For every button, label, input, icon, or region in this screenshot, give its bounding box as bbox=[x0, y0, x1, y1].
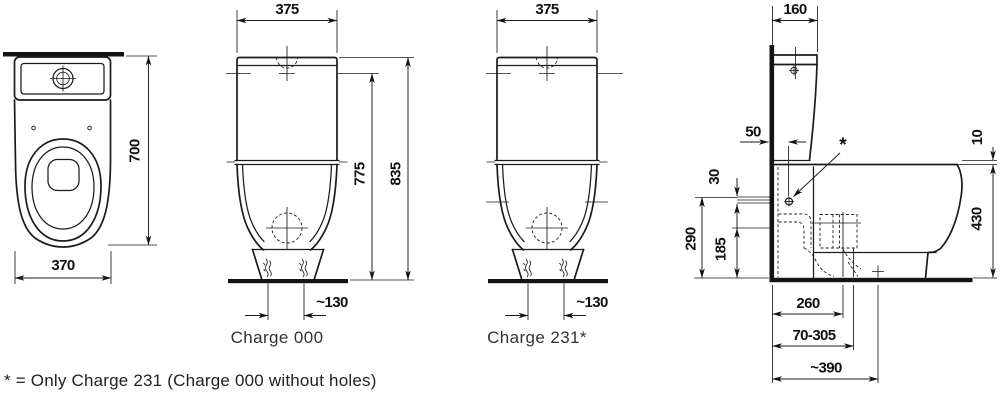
dim-bolt-spacing: ~130 bbox=[316, 294, 348, 311]
technical-drawing-page: 370 700 375 ~130 775 835 Charge 000 375 … bbox=[0, 0, 1000, 401]
floor-line bbox=[770, 278, 973, 282]
dim-height-835: 835 bbox=[388, 162, 405, 185]
trapway-hidden-lines bbox=[778, 167, 861, 278]
caption-charge-231: Charge 231* bbox=[487, 328, 587, 347]
wall-line bbox=[3, 52, 124, 57]
dim-bolt-spacing: ~130 bbox=[576, 294, 608, 311]
flush-button bbox=[50, 66, 76, 92]
front-view-charge-231: 375 ~130 Charge 231* bbox=[486, 1, 623, 347]
side-view: 160 bbox=[683, 1, 998, 383]
dim-width-370: 370 bbox=[51, 257, 74, 274]
asterisk-mark: * bbox=[839, 135, 847, 156]
side-inlet-hole bbox=[784, 197, 794, 207]
dim-cistern-depth-160: 160 bbox=[783, 1, 806, 18]
top-inlet-hole bbox=[789, 66, 799, 76]
dim-outlet-range-70-305: 70-305 bbox=[792, 327, 835, 344]
dim-rim-height-430: 430 bbox=[969, 207, 986, 230]
dim-outlet-dist-260: 260 bbox=[796, 295, 819, 312]
dim-inlet-offset-50: 50 bbox=[745, 124, 761, 141]
dim-height-775: 775 bbox=[352, 162, 369, 185]
asterisk-leader bbox=[794, 153, 841, 197]
wall-line bbox=[770, 45, 775, 282]
bowl-front-profile bbox=[926, 165, 962, 279]
dim-width-375: 375 bbox=[275, 1, 298, 18]
bowl-water-area bbox=[48, 160, 79, 191]
seat-fixing-hole bbox=[32, 126, 36, 130]
dim-supply-span-30: 30 bbox=[706, 169, 723, 185]
wc-dimension-drawing: 370 700 375 ~130 775 835 Charge 000 375 … bbox=[0, 0, 1000, 401]
cistern-front-edge bbox=[810, 65, 818, 161]
front-view-charge-000: 375 ~130 775 835 Charge 000 bbox=[226, 1, 414, 347]
footnote: * = Only Charge 231 (Charge 000 without … bbox=[4, 371, 377, 390]
dim-width-375: 375 bbox=[535, 1, 558, 18]
water-supply-lines bbox=[737, 197, 770, 203]
dim-depth-700: 700 bbox=[127, 139, 144, 162]
dim-supply-height-290: 290 bbox=[683, 227, 700, 250]
bowl-top-outline bbox=[15, 100, 111, 247]
dim-outlet-max-390: ~390 bbox=[810, 360, 842, 377]
floor-outlet-marker bbox=[872, 266, 884, 278]
dim-outlet-height-185: 185 bbox=[713, 238, 730, 261]
caption-charge-000: Charge 000 bbox=[231, 328, 324, 347]
dim-rim-step-10: 10 bbox=[969, 130, 986, 146]
top-view: 370 700 bbox=[3, 52, 157, 284]
seat-fixing-hole bbox=[88, 126, 92, 130]
